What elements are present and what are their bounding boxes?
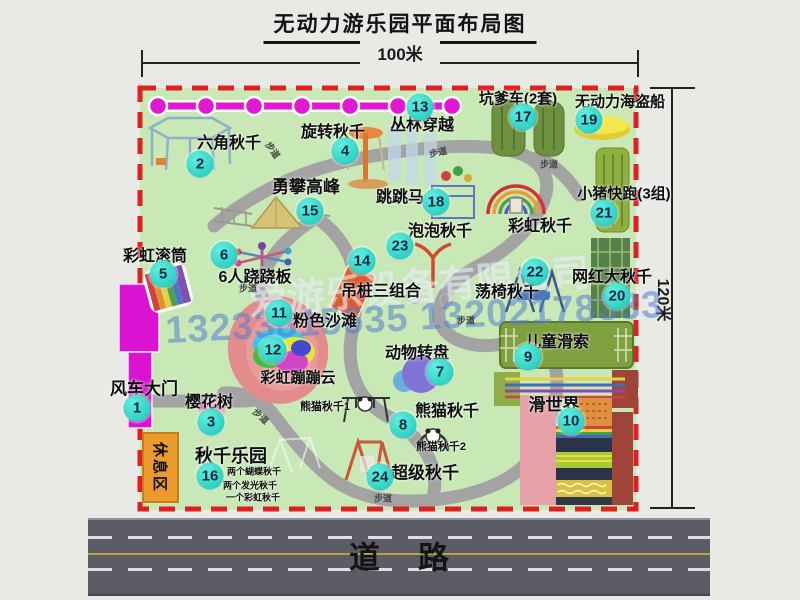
attraction-label: 吊桩三组合	[341, 277, 421, 301]
attraction-label: 粉色沙滩	[293, 307, 357, 331]
walkway-label: 步道	[374, 492, 392, 505]
attraction-marker: 14	[349, 248, 376, 275]
walkway-label: 步道	[540, 158, 558, 171]
attraction-marker: 5	[150, 261, 177, 288]
attraction-marker: 15	[297, 198, 324, 225]
walkway-label: 步道	[263, 139, 284, 161]
attraction-marker: 23	[387, 233, 414, 260]
attraction-marker: 4	[332, 138, 359, 165]
plan-canvas: 无动力游乐园平面布局图	[0, 0, 800, 600]
walkway-label: 步道	[457, 314, 475, 327]
attraction-label: 熊猫秋千	[415, 397, 479, 421]
poi-layer: 风车大门1六角秋千2樱花树3旋转秋千4彩虹滚筒56人跷跷板6动物转盘7熊猫秋千8…	[0, 0, 800, 600]
attraction-marker: 13	[407, 94, 434, 121]
attraction-label: 勇攀高峰	[272, 173, 340, 198]
attraction-marker: 18	[423, 189, 450, 216]
sub-label: 熊猫秋千2	[416, 438, 466, 454]
attraction-marker: 7	[427, 359, 454, 386]
attraction-label: 彩虹蹦蹦云	[260, 367, 335, 388]
attraction-label: 泡泡秋千	[408, 217, 472, 241]
sub-label: 一个彩虹秋千	[226, 491, 280, 504]
attraction-marker: 17	[510, 104, 537, 131]
attraction-marker: 22	[522, 259, 549, 286]
sub-label: 彩虹秋千	[508, 212, 572, 236]
attraction-marker: 19	[576, 107, 603, 134]
attraction-marker: 10	[558, 408, 585, 435]
attraction-label: 小猪快跑(3组)	[577, 183, 670, 204]
walkway-label: 步道	[239, 282, 257, 295]
attraction-marker: 1	[124, 395, 151, 422]
attraction-marker: 6	[211, 242, 238, 269]
attraction-marker: 21	[591, 200, 618, 227]
walkway-label: 步道	[250, 405, 272, 427]
attraction-marker: 16	[197, 463, 224, 490]
attraction-marker: 24	[367, 464, 394, 491]
attraction-marker: 12	[260, 337, 287, 364]
sub-label: 熊猫秋千1	[300, 398, 350, 414]
attraction-marker: 2	[187, 151, 214, 178]
attraction-marker: 11	[266, 300, 293, 327]
attraction-label: 旋转秋千	[301, 118, 365, 142]
attraction-label: 六角秋千	[197, 129, 261, 153]
attraction-marker: 3	[198, 409, 225, 436]
attraction-label: 超级秋千	[391, 459, 459, 484]
sub-label: 两个蝴蝶秋千	[227, 465, 281, 478]
walkway-label: 步道	[428, 144, 448, 160]
attraction-marker: 9	[515, 344, 542, 371]
attraction-marker: 8	[390, 412, 417, 439]
attraction-marker: 20	[604, 283, 631, 310]
attraction-label: 跳跳马	[376, 183, 424, 207]
